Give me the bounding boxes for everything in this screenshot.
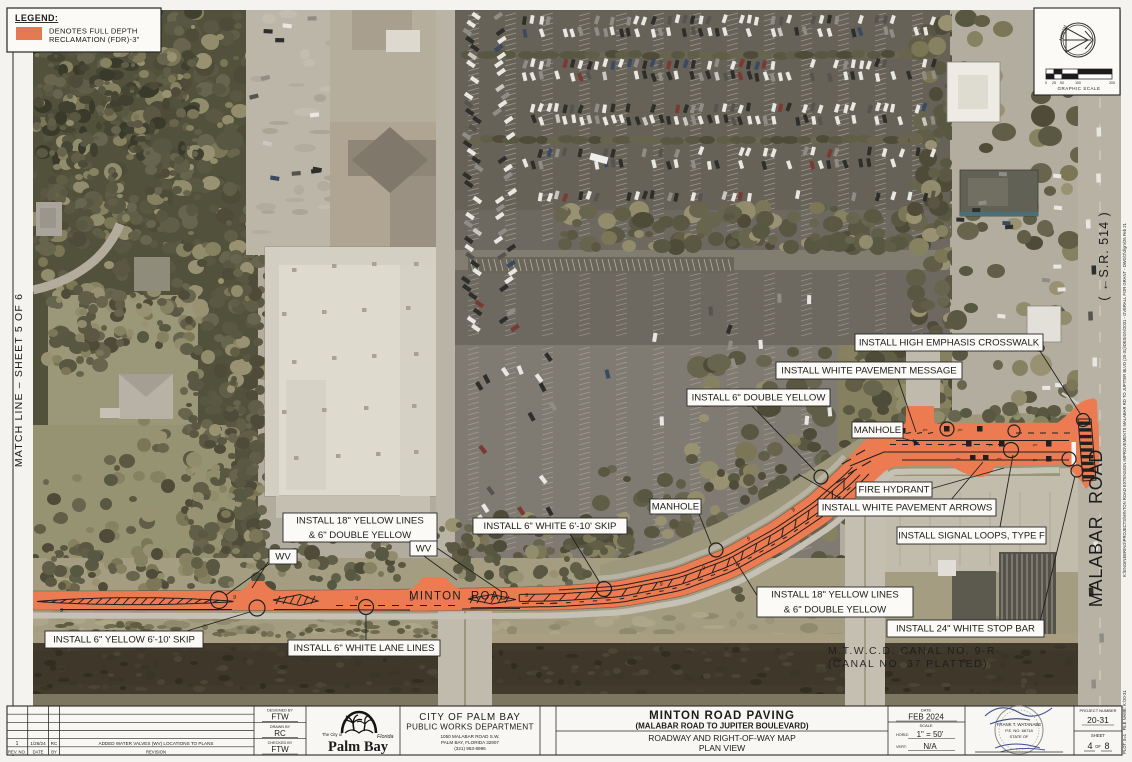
svg-text:N/A: N/A (923, 742, 937, 751)
svg-text:LEGEND:: LEGEND: (15, 13, 58, 23)
svg-text:1/26/24: 1/26/24 (30, 741, 46, 746)
svg-text:The City of: The City of (322, 732, 343, 737)
svg-text:REVISION: REVISION (146, 750, 166, 755)
svg-text:Palm Bay: Palm Bay (328, 739, 389, 755)
svg-text:PLAN VIEW: PLAN VIEW (699, 743, 745, 753)
svg-text:INSTALL 6" WHITE 6'-10' SKIP: INSTALL 6" WHITE 6'-10' SKIP (484, 521, 617, 532)
svg-text:OF: OF (1095, 744, 1101, 749)
svg-text:1" = 50': 1" = 50' (917, 730, 944, 739)
svg-text:RC: RC (274, 729, 286, 738)
svg-text:PLOT: 0=1 FILE NAME: K:\20-3: PLOT: 0=1 FILE NAME: K:\20-31 (1122, 690, 1127, 754)
svg-text:INSTALL WHITE PAVEMENT ARROWS: INSTALL WHITE PAVEMENT ARROWS (822, 503, 993, 514)
svg-text:& 6" DOUBLE YELLOW: & 6" DOUBLE YELLOW (309, 530, 412, 541)
svg-text:P.E. NO. 66718: P.E. NO. 66718 (1005, 728, 1033, 733)
svg-text:200: 200 (1109, 81, 1115, 85)
svg-text:INSTALL HIGH EMPHASIS CROSSWAL: INSTALL HIGH EMPHASIS CROSSWALK (859, 338, 1040, 349)
svg-text:( ←S.R. 514 ): ( ←S.R. 514 ) (1097, 211, 1111, 300)
svg-text:BY: BY (51, 750, 57, 755)
svg-text:25: 25 (1052, 81, 1056, 85)
svg-text:(CANAL NO. 37 PLATTED): (CANAL NO. 37 PLATTED) (828, 658, 988, 670)
svg-text:MALABAR ROAD: MALABAR ROAD (1086, 449, 1106, 607)
svg-text:MATCH LINE – SHEET 5 OF 6: MATCH LINE – SHEET 5 OF 6 (13, 293, 25, 467)
svg-text:GRAPHIC SCALE: GRAPHIC SCALE (1057, 86, 1100, 91)
svg-text:INSTALL SIGNAL LOOPS, TYPE F: INSTALL SIGNAL LOOPS, TYPE F (898, 530, 1045, 541)
svg-text:1: 1 (16, 741, 19, 747)
svg-text:4: 4 (1087, 741, 1092, 751)
svg-text:(MALABAR ROAD TO JUPITER BOULE: (MALABAR ROAD TO JUPITER BOULEVARD) (635, 722, 808, 731)
svg-text:9: 9 (233, 595, 236, 601)
svg-text:MANHOLE: MANHOLE (854, 425, 901, 436)
svg-text:INSTALL 6" WHITE LANE LINES: INSTALL 6" WHITE LANE LINES (294, 643, 435, 654)
svg-text:PALM BAY, FLORIDA 32907: PALM BAY, FLORIDA 32907 (441, 740, 499, 745)
svg-text:50: 50 (1060, 81, 1064, 85)
svg-text:STATE OF: STATE OF (1010, 734, 1030, 739)
svg-text:PROJECT NUMBER: PROJECT NUMBER (1079, 708, 1116, 713)
svg-text:9: 9 (525, 593, 528, 599)
svg-text:INSTALL WHITE PAVEMENT MESSAGE: INSTALL WHITE PAVEMENT MESSAGE (781, 366, 956, 377)
svg-text:FEB 2024: FEB 2024 (908, 713, 944, 722)
svg-text:MANHOLE: MANHOLE (652, 502, 699, 513)
svg-text:INSTALL 6" YELLOW 6'-10' SKIP: INSTALL 6" YELLOW 6'-10' SKIP (53, 635, 195, 646)
svg-text:RECLAMATION (FDR)-3": RECLAMATION (FDR)-3" (49, 35, 140, 44)
svg-text:MINTON ROAD PAVING: MINTON ROAD PAVING (649, 710, 795, 722)
svg-text:SHEET: SHEET (1091, 733, 1105, 738)
svg-text:INSTALL 24" WHITE STOP BAR: INSTALL 24" WHITE STOP BAR (896, 624, 1035, 635)
svg-text:8: 8 (1104, 741, 1109, 751)
svg-text:PUBLIC WORKS DEPARTMENT: PUBLIC WORKS DEPARTMENT (406, 723, 534, 732)
svg-text:M.T.W.C.D. CANAL NO. 9-R: M.T.W.C.D. CANAL NO. 9-R (828, 645, 996, 657)
svg-text:9: 9 (355, 596, 358, 602)
svg-text:FTW: FTW (271, 713, 289, 722)
svg-text:100: 100 (1075, 81, 1081, 85)
svg-text:REV. NO.: REV. NO. (8, 750, 26, 755)
svg-text:& 6" DOUBLE YELLOW: & 6" DOUBLE YELLOW (784, 605, 887, 616)
svg-text:FTW: FTW (271, 745, 289, 754)
svg-text:INSTALL 6" DOUBLE YELLOW: INSTALL 6" DOUBLE YELLOW (692, 393, 827, 404)
svg-text:SCALE: SCALE (919, 723, 932, 728)
svg-text:K:\ENGINEERING\PROJECTS\MINTON: K:\ENGINEERING\PROJECTS\MINTON ROAD EXTE… (1122, 222, 1127, 577)
svg-text:CITY OF PALM BAY: CITY OF PALM BAY (419, 712, 521, 723)
svg-text:RC: RC (51, 741, 58, 746)
svg-text:INSTALL 18" YELLOW LINES: INSTALL 18" YELLOW LINES (771, 590, 898, 601)
svg-text:FIRE HYDRANT: FIRE HYDRANT (859, 485, 930, 496)
svg-text:ROADWAY AND RIGHT-OF-WAY MAP: ROADWAY AND RIGHT-OF-WAY MAP (648, 733, 796, 743)
svg-text:ADDED WATER VALVES (WV) LOCATI: ADDED WATER VALVES (WV) LOCATIONS TO PLA… (99, 741, 214, 746)
svg-text:WV: WV (275, 552, 291, 563)
svg-text:DATE: DATE (33, 750, 44, 755)
svg-text:HORIZ:: HORIZ: (896, 733, 909, 737)
svg-text:(321) 953-8996: (321) 953-8996 (454, 746, 486, 751)
svg-text:1050 MALABAR ROAD S.W.: 1050 MALABAR ROAD S.W. (441, 734, 500, 739)
svg-text:FRANK T. WATANABE: FRANK T. WATANABE (997, 722, 1042, 727)
svg-text:INSTALL 18" YELLOW LINES: INSTALL 18" YELLOW LINES (296, 516, 423, 527)
svg-text:20-31: 20-31 (1087, 715, 1109, 725)
svg-text:WV: WV (416, 544, 432, 555)
svg-text:9: 9 (60, 608, 63, 614)
svg-text:MINTON ROAD: MINTON ROAD (409, 591, 509, 603)
svg-text:VERT:: VERT: (896, 745, 907, 749)
svg-text:0: 0 (1045, 81, 1047, 85)
